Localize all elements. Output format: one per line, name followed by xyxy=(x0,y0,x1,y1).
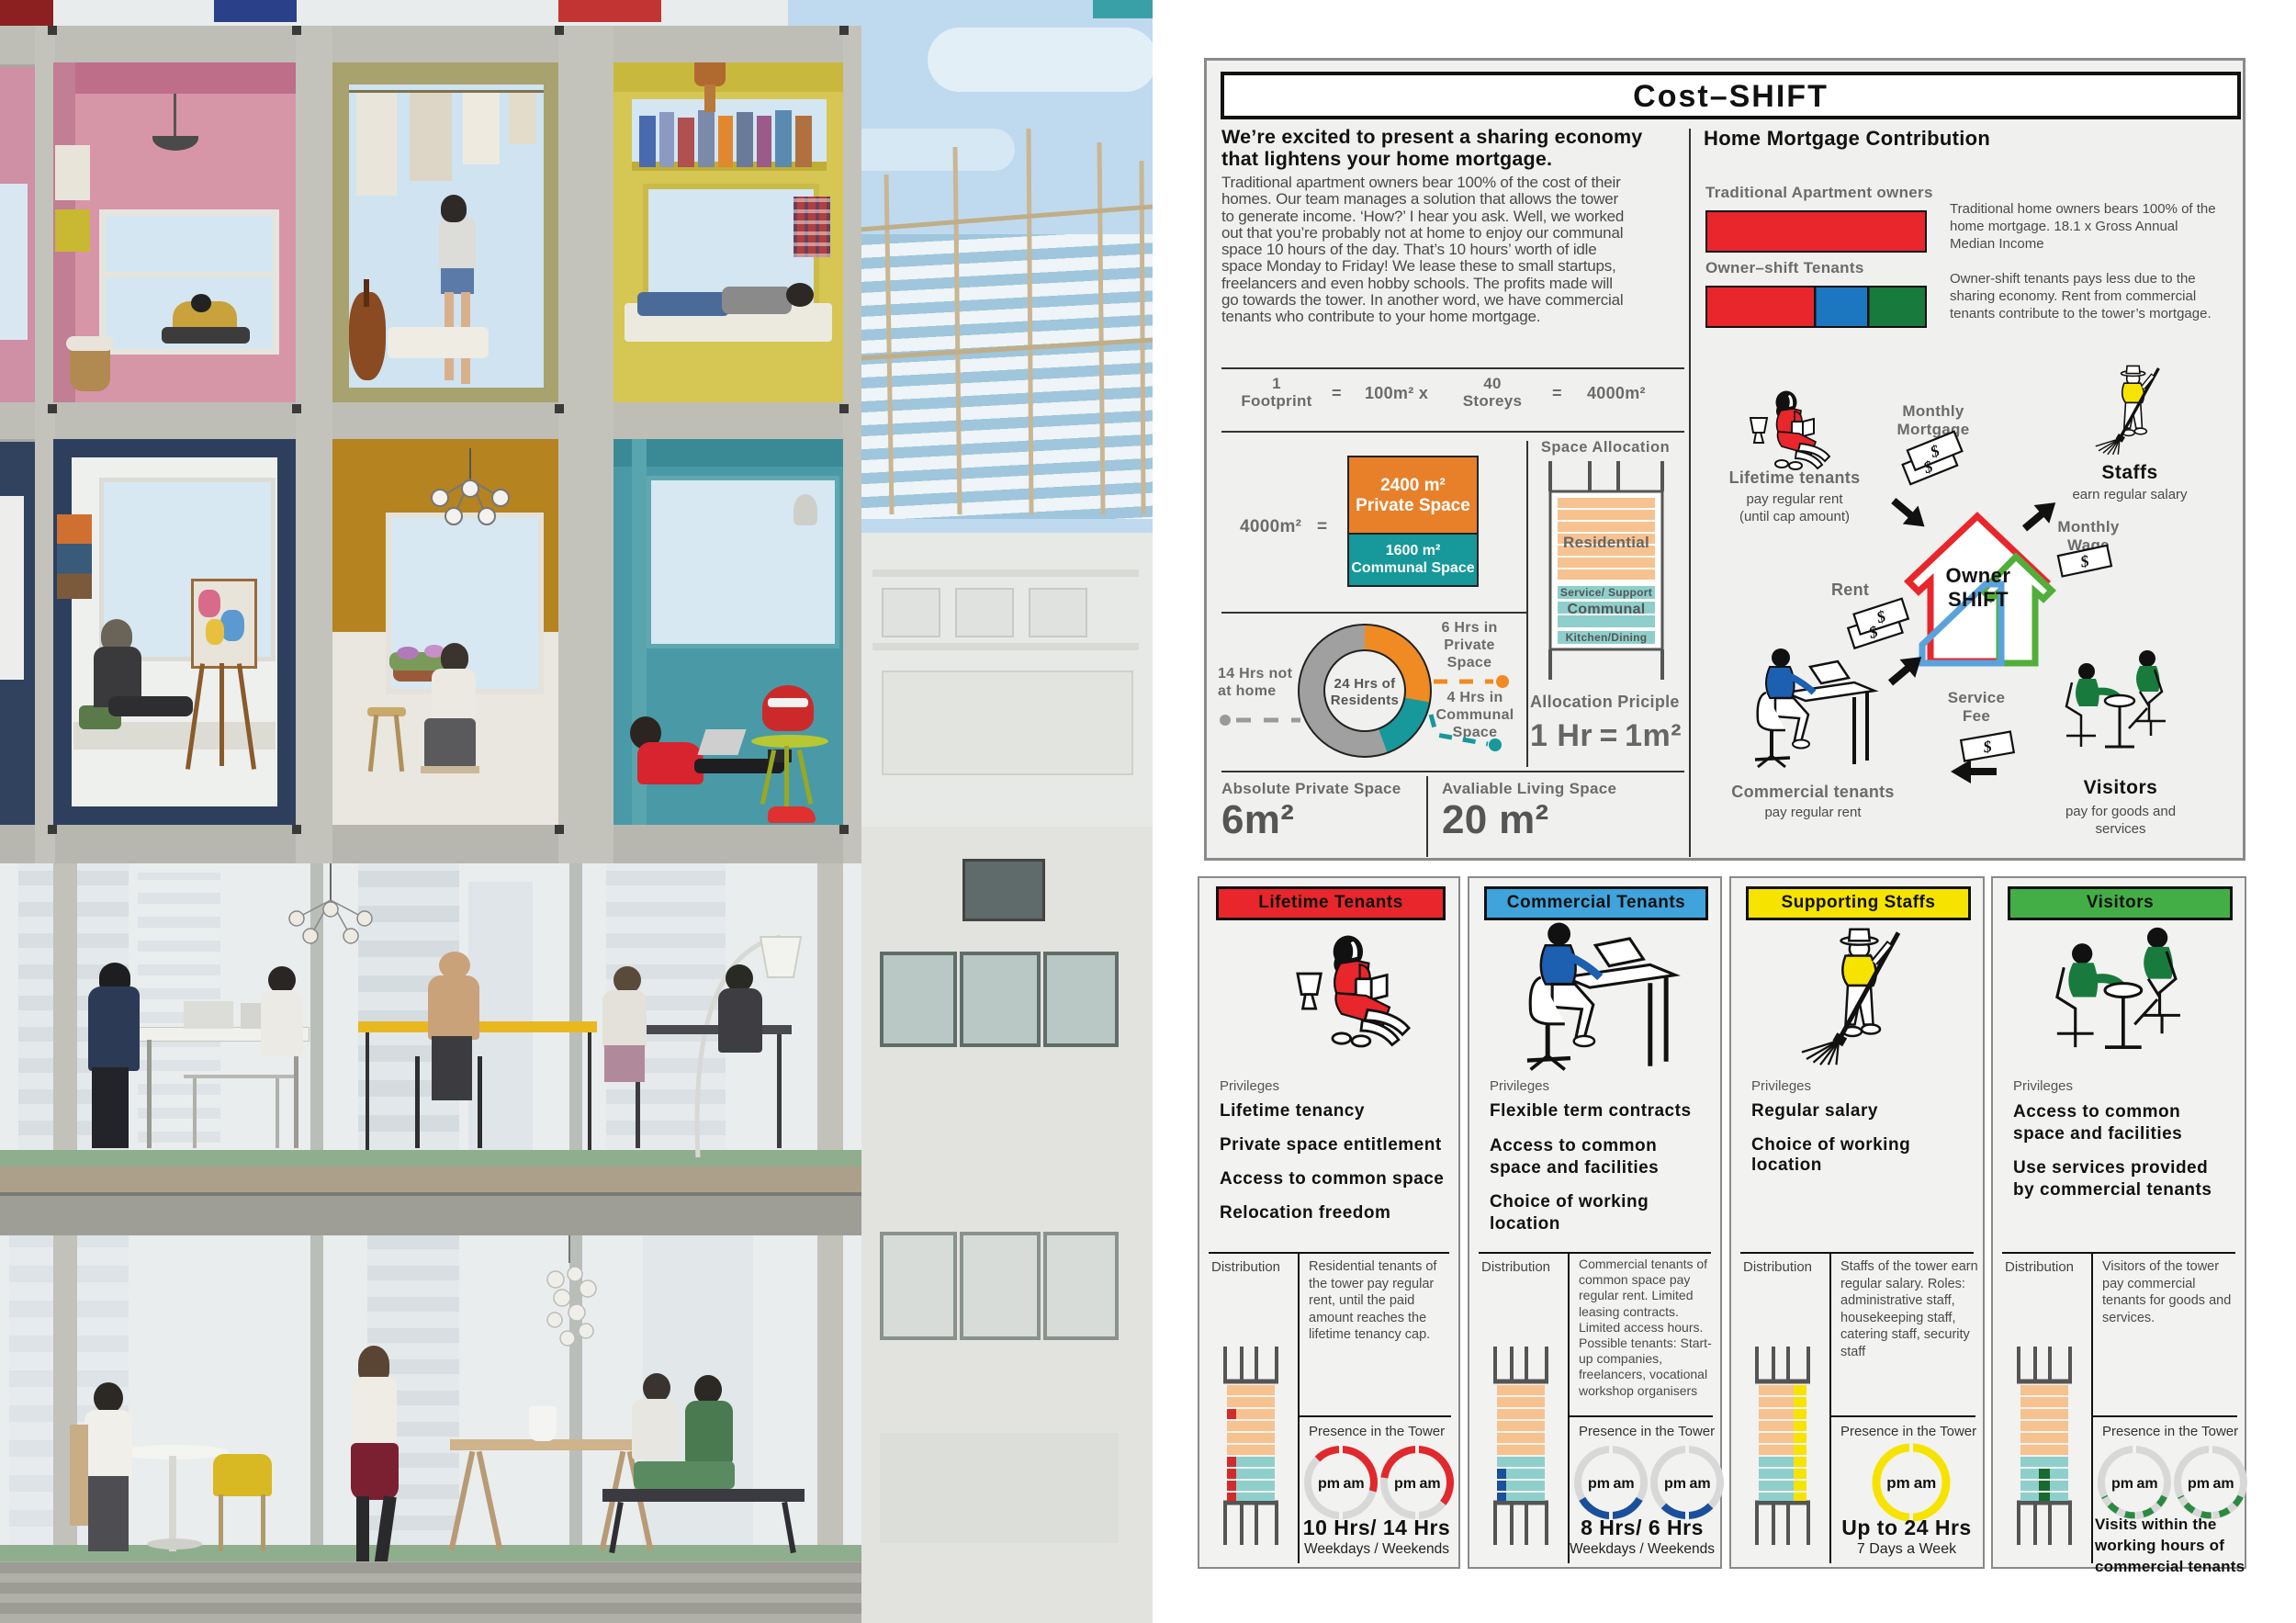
svg-text:pm: pm xyxy=(2111,1476,2133,1492)
svg-text:pm: pm xyxy=(1318,1476,1340,1492)
svg-text:pm: pm xyxy=(1394,1476,1416,1492)
svg-text:am: am xyxy=(1419,1476,1440,1492)
svg-text:am: am xyxy=(1914,1474,1937,1492)
svg-text:am: am xyxy=(1689,1476,1710,1492)
svg-text:am: am xyxy=(1613,1476,1634,1492)
svg-text:am: am xyxy=(2136,1476,2157,1492)
svg-text:am: am xyxy=(1343,1476,1364,1492)
svg-text:pm: pm xyxy=(1886,1474,1910,1492)
svg-text:am: am xyxy=(2212,1476,2234,1492)
svg-text:pm: pm xyxy=(1588,1476,1610,1492)
svg-text:pm: pm xyxy=(2188,1476,2210,1492)
svg-text:pm: pm xyxy=(1664,1476,1686,1492)
